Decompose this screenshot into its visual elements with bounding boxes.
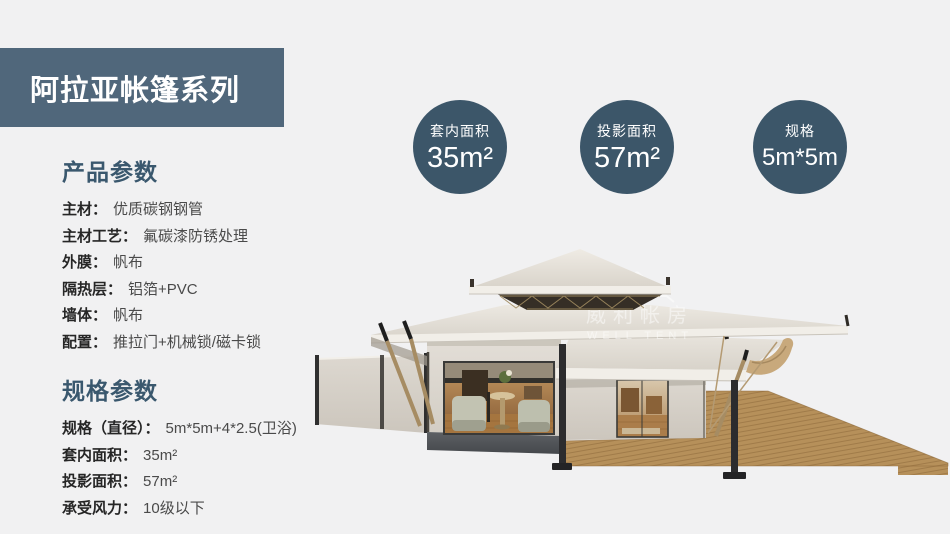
product-slide: 阿拉亚帐篷系列 产品参数 主材：优质碳钢钢管 主材工艺：氟碳漆防锈处理 外膜：帆… — [0, 0, 950, 534]
watermark-en: WELL TENT — [587, 330, 693, 342]
top-roof-fascia — [469, 286, 671, 294]
doorway — [617, 380, 668, 437]
right-wing-wall — [562, 377, 706, 440]
interior-art — [524, 386, 542, 399]
top-roof — [469, 249, 671, 310]
lounge-window — [444, 362, 554, 434]
interior-cabinet — [621, 388, 639, 412]
roof-corner-finial — [846, 315, 848, 326]
side-fence-panel — [315, 353, 428, 433]
interior-rug — [622, 428, 660, 434]
interior-side-table — [646, 396, 662, 414]
interior-lamp — [487, 392, 490, 422]
tent-illustration: 威利帐房 WELL TENT — [0, 0, 950, 534]
